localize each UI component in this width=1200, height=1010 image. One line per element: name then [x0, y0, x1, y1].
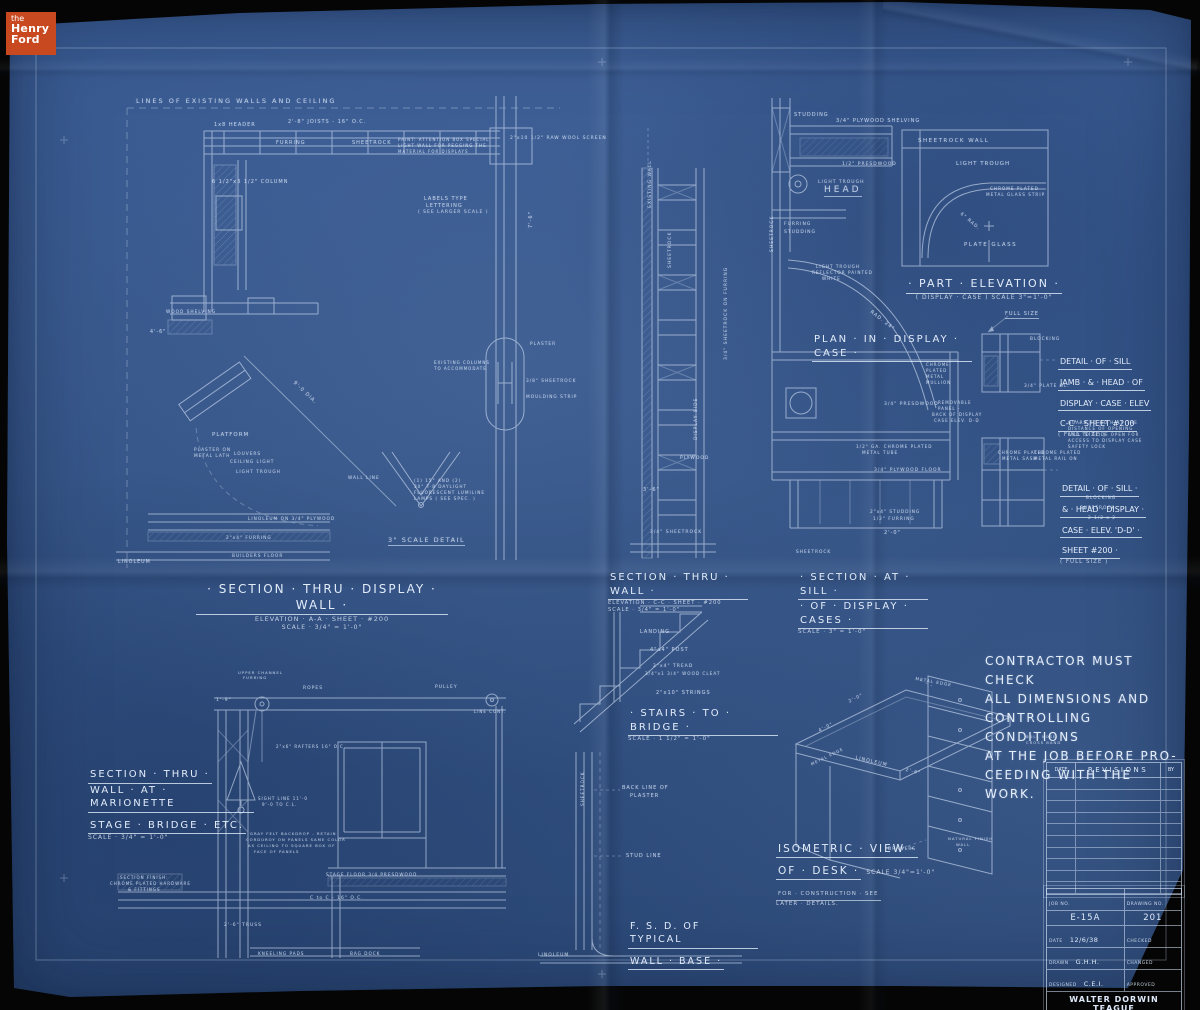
annotation-label: PLYWOOD	[680, 456, 709, 461]
annotation-label: LINOLEUM ON 3/4" PLYWOOD	[248, 517, 335, 522]
annotation-label: 4"x4" POST	[650, 647, 689, 653]
revisions-empty-row	[1047, 778, 1181, 790]
annotation-label: LIGHT TROUGH	[236, 470, 281, 475]
annotation-label: LIGHT TROUGH	[956, 161, 1010, 167]
title-fsd-wall-base: F. S. D. OF TYPICAL WALL · BASE ·	[628, 921, 758, 970]
annotation-label: METAL SASH	[1002, 456, 1037, 461]
section-subtitle: ELEVATION · A-A · SHEET · #200	[196, 615, 448, 624]
section-scale: SCALE · 3/4" = 1'-0"	[88, 834, 254, 842]
section-title: F. S. D. OF TYPICAL	[628, 921, 758, 949]
section-subtitle: ELEVATION · C-C · SHEET · #200	[608, 600, 748, 607]
annotation-label: PLASTER ON	[194, 448, 231, 453]
logo-text-ford: Ford	[11, 34, 56, 45]
revisions-rows	[1047, 778, 1181, 894]
annotation-label: (1) 15" AND (2)	[414, 478, 461, 483]
section-title-line2: · OF · DISPLAY · CASES ·	[798, 600, 928, 629]
section-title: · SECTION · AT · SILL ·	[798, 571, 928, 600]
section-title: ISOMETRIC · VIEW ·	[776, 842, 918, 858]
annotation-label: PLATED	[926, 368, 947, 373]
annotation-label: METAL LATH	[194, 454, 230, 459]
note-line: CONTRACTOR MUST CHECK	[985, 652, 1185, 690]
title-detail-cc: DETAIL · OF · SILL JAMB · & · HEAD · OF …	[1058, 349, 1184, 440]
job-no-value: E-15A	[1047, 911, 1125, 925]
detail-line: DETAIL · OF · SILL ·	[1060, 484, 1139, 497]
checked-label: CHECKED	[1127, 939, 1152, 944]
revisions-by-header: BY	[1161, 767, 1181, 773]
annotation-label: 2'-6" TRUSS	[224, 923, 262, 928]
annotation-label: FURRING	[276, 140, 306, 146]
annotation-label: 1/2" FURRING	[873, 517, 915, 522]
annotation-label: STUDDING	[794, 112, 829, 118]
annotation-label: 3'-6"	[643, 487, 660, 493]
annotation-label: 3/8" SHEETROCK	[526, 379, 576, 384]
detail-tail: ( FULL SIZE )	[1058, 432, 1184, 439]
annotation-label: LINES OF EXISTING WALLS AND CEILING	[136, 97, 336, 105]
annotation-label: LINE CONT.	[474, 709, 506, 714]
annotation-label: FULL SIZE	[1005, 311, 1039, 319]
section-scale: SCALE · 3/4" = 1'-0"	[608, 607, 748, 614]
annotation-label: REFLECTOR PAINTED	[812, 270, 873, 275]
approved-label: APPROVED	[1127, 983, 1155, 988]
title-block: JOB NO. DRAWING NO. E-15A 201 DATE 12/6/…	[1046, 888, 1182, 1010]
annotation-label: 2"x4" TREAD	[653, 664, 693, 669]
annotation-label: METAL RAIL ON	[1034, 456, 1078, 461]
annotation-label: BACK OF DISPLAY	[932, 412, 982, 417]
annotation-label: 3/4"x1 3/4" WOOD CLEAT	[645, 671, 720, 676]
section-title: · PART · ELEVATION ·	[906, 277, 1062, 294]
annotation-label: LINOLEUM	[538, 953, 569, 958]
section-note: FOR · CONSTRUCTION · SEE	[776, 891, 881, 900]
annotation-label: PULLEY	[435, 685, 458, 690]
annotation-label: 2'-0"	[884, 530, 901, 536]
revisions-header-row: DATE REVISIONS BY	[1047, 763, 1181, 778]
section-scale: SCALE · 1 1/2" = 1'-0"	[628, 736, 778, 743]
annotation-label: SHEETROCK	[770, 216, 775, 252]
annotation-label: 2"x6" RAFTERS 16" O.C.	[276, 744, 346, 749]
annotation-label: & FITTINGS	[128, 887, 161, 892]
firm-name: WALTER DORWIN TEAGUE	[1047, 995, 1181, 1010]
annotation-label: SHEETROCK	[796, 550, 831, 555]
annotation-label: LABELS TYPE	[424, 196, 468, 202]
annotation-label: MATERIAL FOR DISPLAYS	[398, 149, 468, 154]
sill-details-drawing	[982, 316, 1058, 526]
detail-line: JAMB · & · HEAD · OF	[1058, 378, 1145, 391]
annotation-label: 2"x4" FURRING	[226, 536, 272, 541]
annotation-label: 4'-6"	[150, 330, 166, 335]
title-marionette-section: SECTION · THRU · WALL · AT · MARIONETTE …	[88, 762, 254, 842]
revisions-empty-row	[1047, 836, 1181, 848]
annotation-label: BUILDERS FLOOR	[232, 554, 283, 559]
annotation-label: 2"x4" STUDDING	[870, 510, 920, 515]
section-title: · STAIRS · TO · BRIDGE ·	[628, 707, 778, 736]
firm-name-block: WALTER DORWIN TEAGUE D E S I G N E R 210…	[1047, 992, 1181, 1010]
annotation-label: 2'-8" JOISTS - 16" O.C.	[288, 119, 366, 125]
title-block-header-row: JOB NO. DRAWING NO.	[1047, 889, 1181, 911]
annotation-label: BLOCKING	[1030, 337, 1060, 342]
annotation-label: CHROME PLATED	[990, 186, 1039, 191]
title-detail-dd: DETAIL · OF · SILL · & · HEAD · DISPLAY …	[1060, 476, 1182, 567]
annotation-label: STUDDING	[784, 230, 816, 235]
title-block-designed-row: DESIGNED C.E.I. APPROVED	[1047, 970, 1181, 992]
designed-value: C.E.I.	[1084, 980, 1104, 988]
annotation-label: 3/4" PLYWOOD SHELVING	[836, 118, 920, 124]
date-value: 12/6/38	[1070, 936, 1099, 944]
revisions-empty-row	[1047, 859, 1181, 871]
revisions-empty-row	[1047, 871, 1181, 883]
annotation-label: CHROME PLATED	[1034, 450, 1081, 455]
annotation-label: 1'-9"	[216, 698, 232, 703]
section-title: PLAN · IN · DISPLAY · CASE ·	[812, 333, 972, 362]
drawing-no-value: 201	[1125, 911, 1181, 925]
title-part-elevation: · PART · ELEVATION · ( DISPLAY · CASE ) …	[896, 272, 1072, 302]
annotation-label: 7'-6"	[528, 211, 534, 228]
revisions-empty-row	[1047, 801, 1181, 813]
annotation-label: SAFETY LOCK	[1068, 444, 1106, 449]
designed-label: DESIGNED	[1049, 983, 1077, 988]
annotation-label: FURRING	[243, 675, 267, 680]
annotation-label: CASE ELEV. D-D	[934, 418, 980, 423]
annotation-label: SHEETROCK WALL	[918, 138, 989, 144]
annotation-label: 6 1/2"x3 1/2" COLUMN	[212, 179, 288, 185]
annotation-label: FACE OF PANELS	[254, 849, 299, 854]
revisions-title-header: REVISIONS	[1075, 763, 1161, 777]
title-block-number-row: E-15A 201	[1047, 911, 1181, 926]
revisions-date-header: DATE	[1047, 767, 1075, 773]
title-section-thru-wall: SECTION · THRU · WALL · ELEVATION · C-C …	[608, 571, 748, 614]
annotation-label: GRAY FELT BACKDROP - RETAIN	[250, 831, 336, 836]
annotation-label: ROPES	[303, 686, 323, 691]
note-line: CONTROLLING CONDITIONS	[985, 709, 1185, 747]
photo-background: the Henry Ford LINES OF EXISTING WALLS A…	[0, 0, 1200, 1010]
section-scale: ( DISPLAY · CASE ) SCALE 3"=1'-0"	[896, 294, 1072, 302]
annotation-label: 1/2" PRESDWOOD	[842, 162, 897, 167]
annotation-label: WHITE	[822, 276, 841, 281]
detail-line: CASE · ELEV. 'D-D' ·	[1060, 526, 1142, 539]
revisions-empty-row	[1047, 790, 1181, 802]
revisions-empty-row	[1047, 824, 1181, 836]
section-title: SECTION · THRU ·	[88, 768, 212, 784]
annotation-label: AS CEILING TO SQUARE BOX OF	[248, 843, 335, 848]
drawn-label: DRAWN	[1049, 961, 1069, 966]
annotation-label: PAINT: ATTENTION BOX SPECIAL	[398, 137, 489, 142]
detail-line: SHEET #200 ·	[1060, 546, 1120, 559]
annotation-label: LOUVERS	[234, 452, 261, 457]
section-title-line3: STAGE · BRIDGE · ETC.	[88, 819, 246, 835]
annotation-label: LANDING	[640, 629, 670, 635]
annotation-label: FLUORESCENT LUMILINE	[414, 490, 485, 495]
annotation-label: METAL	[926, 374, 944, 379]
annotation-label: WALL	[956, 842, 970, 847]
annotation-label: 30" T-8 DAYLIGHT	[414, 484, 467, 489]
annotation-label: CEILING LIGHT	[230, 460, 274, 465]
henry-ford-logo: the Henry Ford	[6, 12, 56, 55]
note-line: ALL DIMENSIONS AND	[985, 690, 1185, 709]
revisions-table: DATE REVISIONS BY	[1046, 762, 1182, 895]
detail-line: DISPLAY · CASE · ELEV	[1058, 399, 1151, 412]
title-block-drawn-row: DRAWN G.H.H. CHANGED	[1047, 948, 1181, 970]
annotation-label: 3/4" SHEETROCK ON FURRING	[724, 267, 729, 360]
section-scale: SCALE · 3" = 1'-0"	[798, 629, 928, 636]
annotation-label: 3/4" SHEETROCK	[650, 530, 702, 535]
annotation-label: C to C - 16" O.C.	[310, 896, 364, 901]
annotation-label: EXISTING COLUMNS	[434, 360, 490, 365]
drawing-no-label: DRAWING NO.	[1127, 902, 1164, 907]
title-plan-in-display-case: PLAN · IN · DISPLAY · CASE ·	[812, 333, 972, 362]
annotation-label: 1x8 HEADER	[214, 122, 256, 128]
job-no-label: JOB NO.	[1049, 902, 1070, 907]
drawing-linework	[0, 0, 1200, 1010]
annotation-label: FURRING	[784, 222, 811, 227]
annotation-label: STAGE FLOOR 3/4 PRESDWOOD	[326, 872, 417, 877]
annotation-label: 3" SCALE DETAIL	[388, 536, 465, 546]
annotation-label: ( SEE LARGER SCALE )	[418, 210, 488, 215]
annotation-label: KNEELING PADS	[258, 951, 304, 956]
detail-line: DETAIL · OF · SILL	[1058, 357, 1132, 370]
annotation-label: LIGHT WALL FOR PEGGING THE	[398, 143, 487, 148]
detail-line: C-C' · SHEET #200	[1058, 419, 1137, 432]
annotation-label: EXISTING WALL	[648, 160, 653, 208]
annotation-label: REMOVABLE	[938, 400, 972, 405]
annotation-label: 2"x10 1/2" RAW WOOL SCREEN	[510, 136, 607, 141]
section-scale: SCALE 3/4"=1'-0"	[866, 869, 935, 876]
title-block-date-row: DATE 12/6/38 CHECKED	[1047, 926, 1181, 948]
title-section-at-sill: · SECTION · AT · SILL · · OF · DISPLAY ·…	[798, 571, 928, 636]
annotation-label: SHEETROCK	[352, 140, 392, 146]
annotation-label: LAMPS ( SEE SPEC. )	[414, 496, 476, 501]
annotation-label: 2"x10" STRINGS	[656, 690, 711, 696]
annotation-label: SHEETROCK	[668, 232, 673, 268]
annotation-label: 3/4" PRESDWOOD	[884, 402, 939, 407]
section-note-line2: LATER · DETAILS.	[776, 901, 956, 908]
annotation-label: 3/4" PLYWOOD FLOOR	[874, 468, 942, 473]
annotation-label: CORDUROY ON PANELS SAME COLOR	[246, 837, 346, 842]
annotation-label: 1/2" GA. CHROME PLATED	[856, 444, 932, 449]
annotation-label: LINOLEUM	[118, 560, 151, 565]
annotation-label: DISPLAY SIDE	[694, 398, 699, 440]
annotation-label: METAL TUBE	[862, 450, 898, 455]
changed-label: CHANGED	[1127, 961, 1153, 966]
annotation-label: PANEL -	[938, 406, 960, 411]
detail-tail: ( FULL SIZE )	[1060, 559, 1182, 566]
annotation-label: PLATE GLASS	[964, 242, 1017, 248]
annotation-label: STUD LINE	[626, 853, 662, 859]
annotation-label: PLATFORM	[212, 432, 249, 438]
annotation-label: MULLION	[926, 380, 951, 385]
section-scale: SCALE · 3/4" = 1'-0"	[196, 624, 448, 632]
annotation-label: LETTERING	[426, 203, 463, 209]
annotation-label: MOULDING STRIP	[526, 395, 577, 400]
annotation-label: SIGHT LINE 11'-0	[258, 796, 308, 801]
annotation-label: WOOD SHELVING	[166, 310, 216, 315]
annotation-label: WALL LINE	[348, 476, 380, 481]
annotation-label: HEAD	[824, 185, 862, 197]
annotation-label: LIGHT TROUGH	[816, 264, 860, 269]
annotation-label: SECTION FINISH:	[120, 875, 168, 880]
annotation-label: TO ACCOMMODATE	[434, 366, 487, 371]
section-title: SECTION · THRU · WALL ·	[608, 571, 748, 600]
revisions-empty-row	[1047, 848, 1181, 860]
drawn-value: G.H.H.	[1076, 958, 1100, 966]
annotation-label: PLASTER	[630, 793, 659, 799]
annotation-label: CHROME PLATED HARDWARE	[110, 881, 191, 886]
revisions-empty-row	[1047, 813, 1181, 825]
detail-line: & · HEAD · DISPLAY ·	[1060, 505, 1146, 518]
section-title: · SECTION · THRU · DISPLAY · WALL ·	[196, 581, 448, 615]
title-isometric-desk: ISOMETRIC · VIEW · OF · DESK · SCALE 3/4…	[776, 837, 956, 908]
annotation-label: BAG DOCK	[350, 951, 380, 956]
annotation-label: BACK LINE OF	[622, 785, 669, 791]
section-title-line2: WALL · AT · MARIONETTE	[88, 784, 254, 813]
section-thru-display-wall-drawing	[116, 96, 560, 568]
annotation-label: 9'-0 TO C.L.	[262, 802, 297, 807]
date-label: DATE	[1049, 939, 1063, 944]
annotation-label: METAL GLASS STRIP	[986, 192, 1045, 197]
section-thru-wall-drawing	[630, 128, 716, 558]
title-stairs-to-bridge: · STAIRS · TO · BRIDGE · SCALE · 1 1/2" …	[628, 707, 778, 743]
section-title-line2: OF · DESK ·	[776, 864, 861, 880]
section-title-line2: WALL · BASE ·	[628, 956, 724, 971]
title-section-thru-display-wall: · SECTION · THRU · DISPLAY · WALL · ELEV…	[196, 581, 448, 632]
annotation-label: PLASTER	[530, 342, 556, 347]
annotation-label: CHROME	[926, 362, 950, 367]
annotation-label: SHEETROCK	[580, 771, 585, 806]
